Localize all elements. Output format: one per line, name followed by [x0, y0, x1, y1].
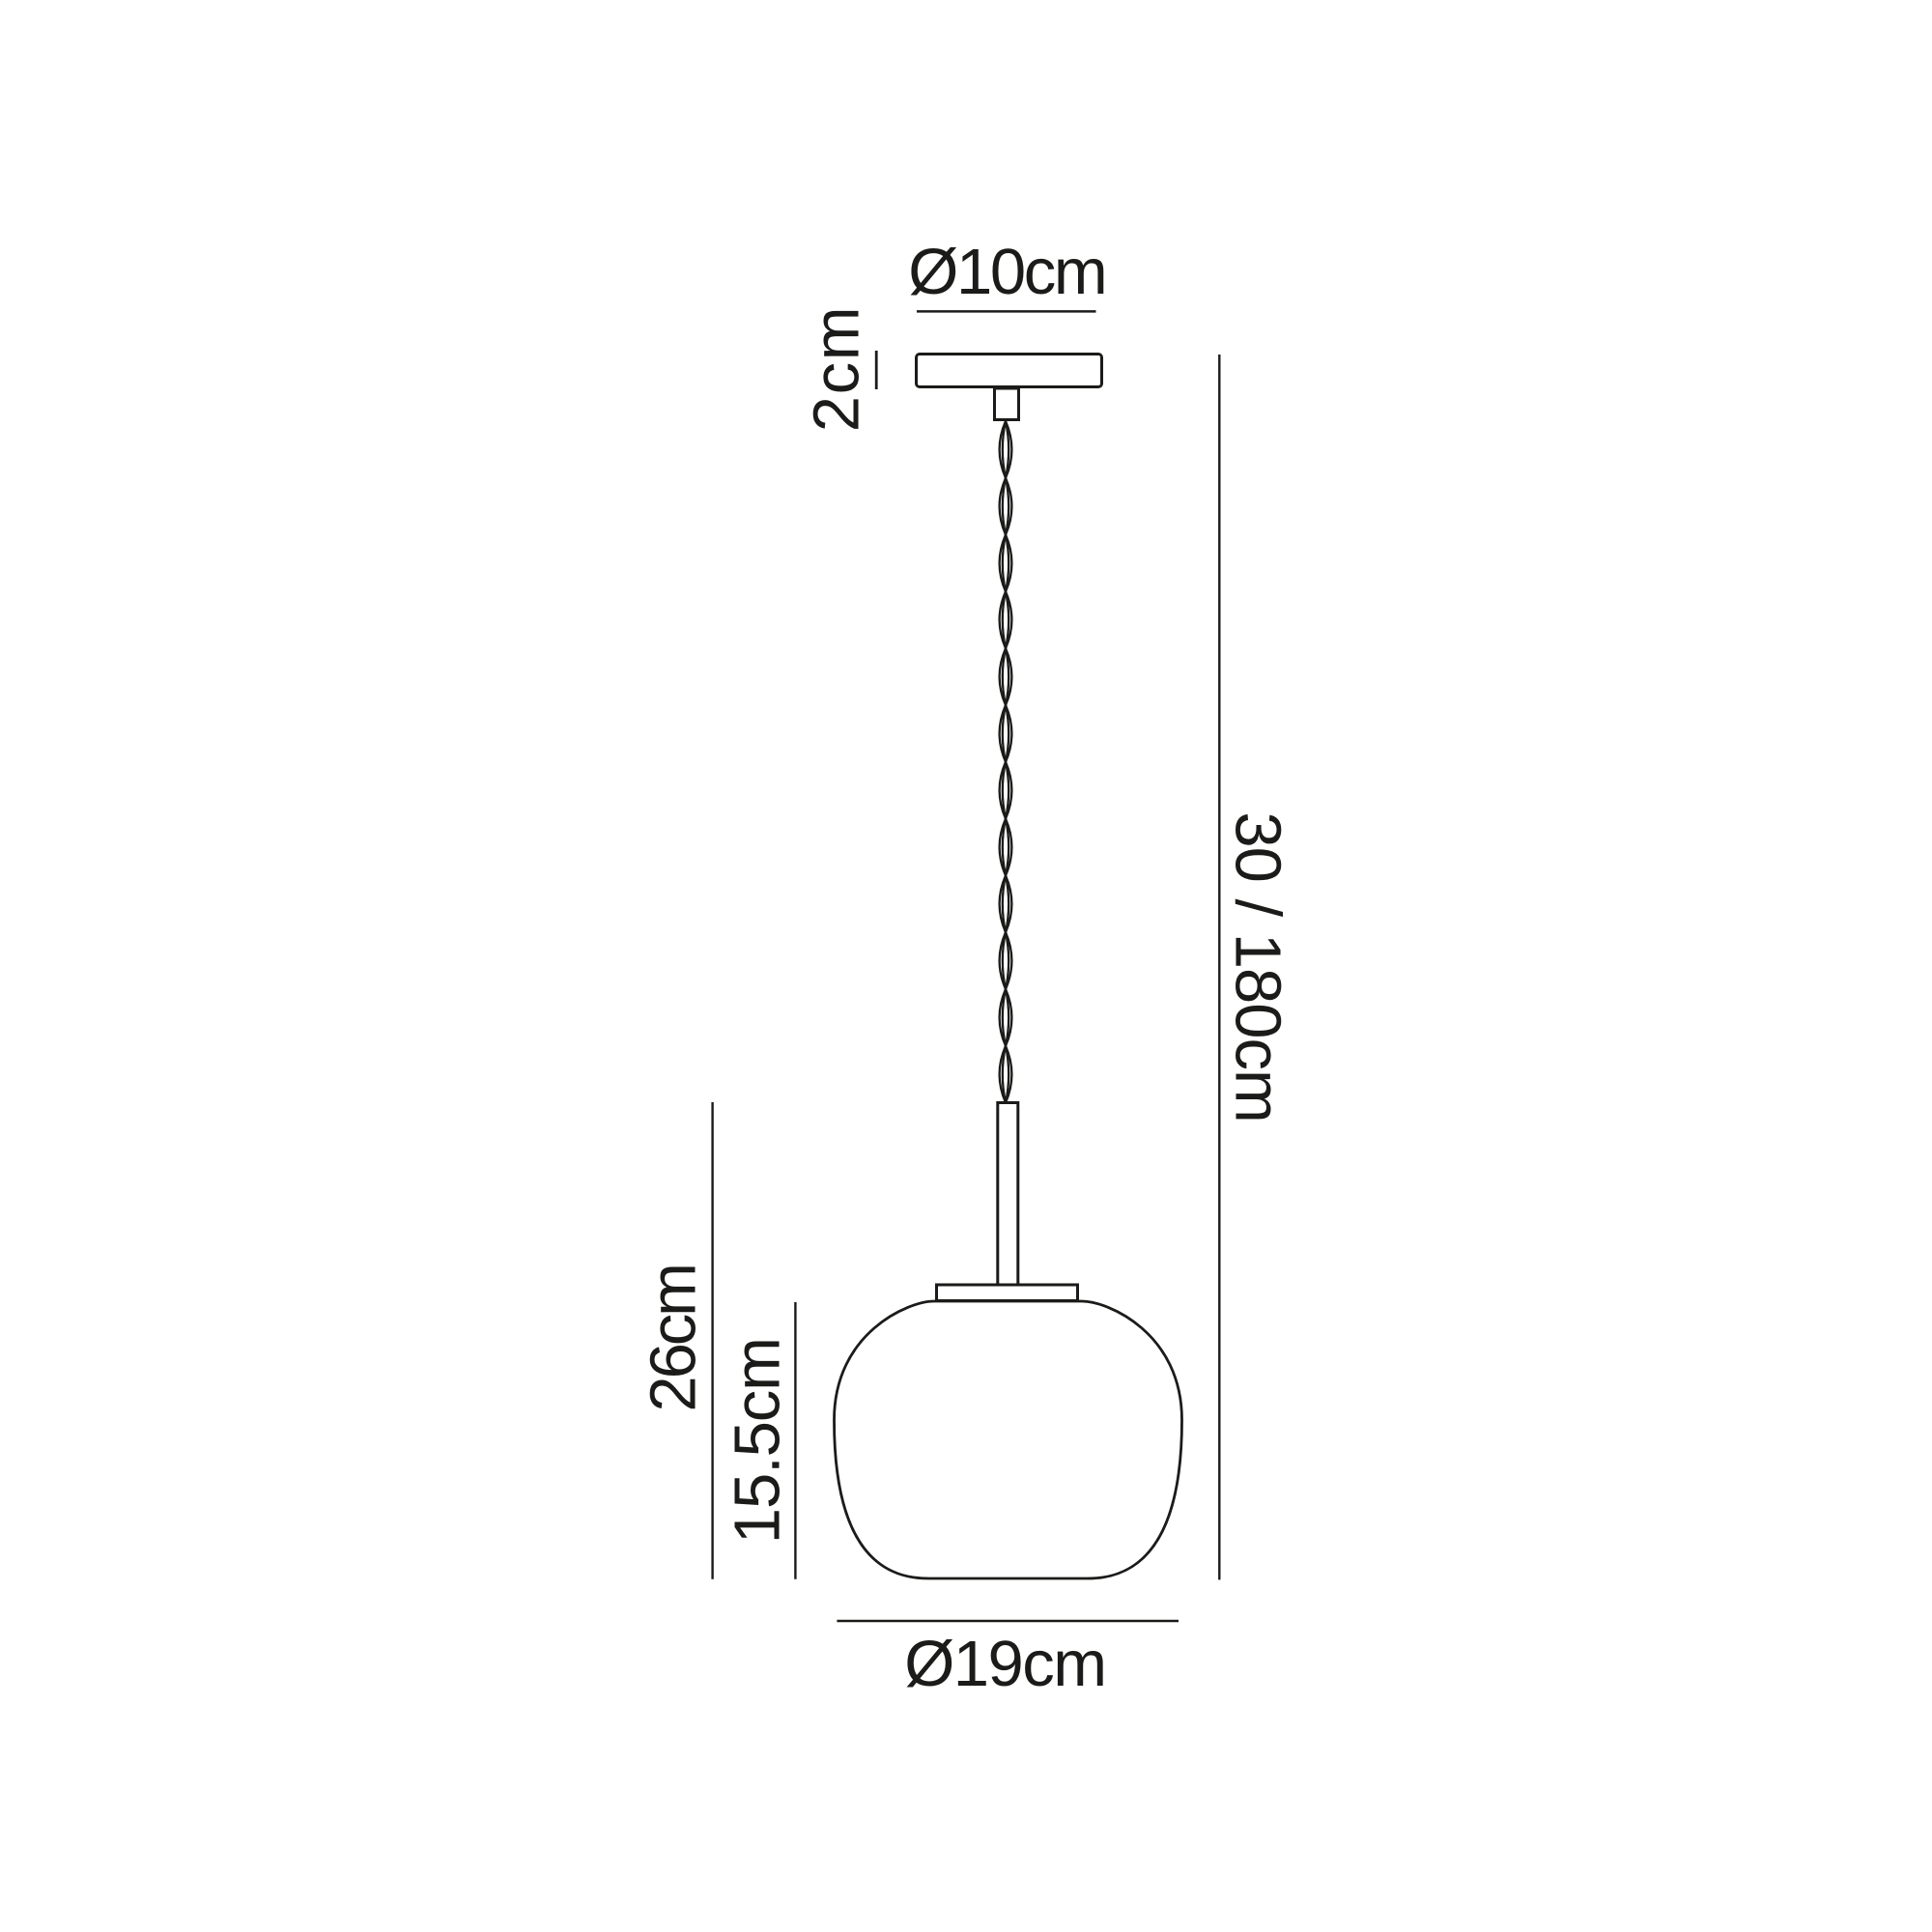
svg-text:2cm: 2cm [801, 306, 873, 432]
svg-text:Ø10cm: Ø10cm [908, 236, 1107, 308]
svg-text:Ø19cm: Ø19cm [904, 1628, 1107, 1700]
svg-text:15.5cm: 15.5cm [722, 1337, 794, 1544]
svg-text:26cm: 26cm [638, 1263, 710, 1412]
svg-text:30 / 180cm: 30 / 180cm [1222, 811, 1294, 1122]
